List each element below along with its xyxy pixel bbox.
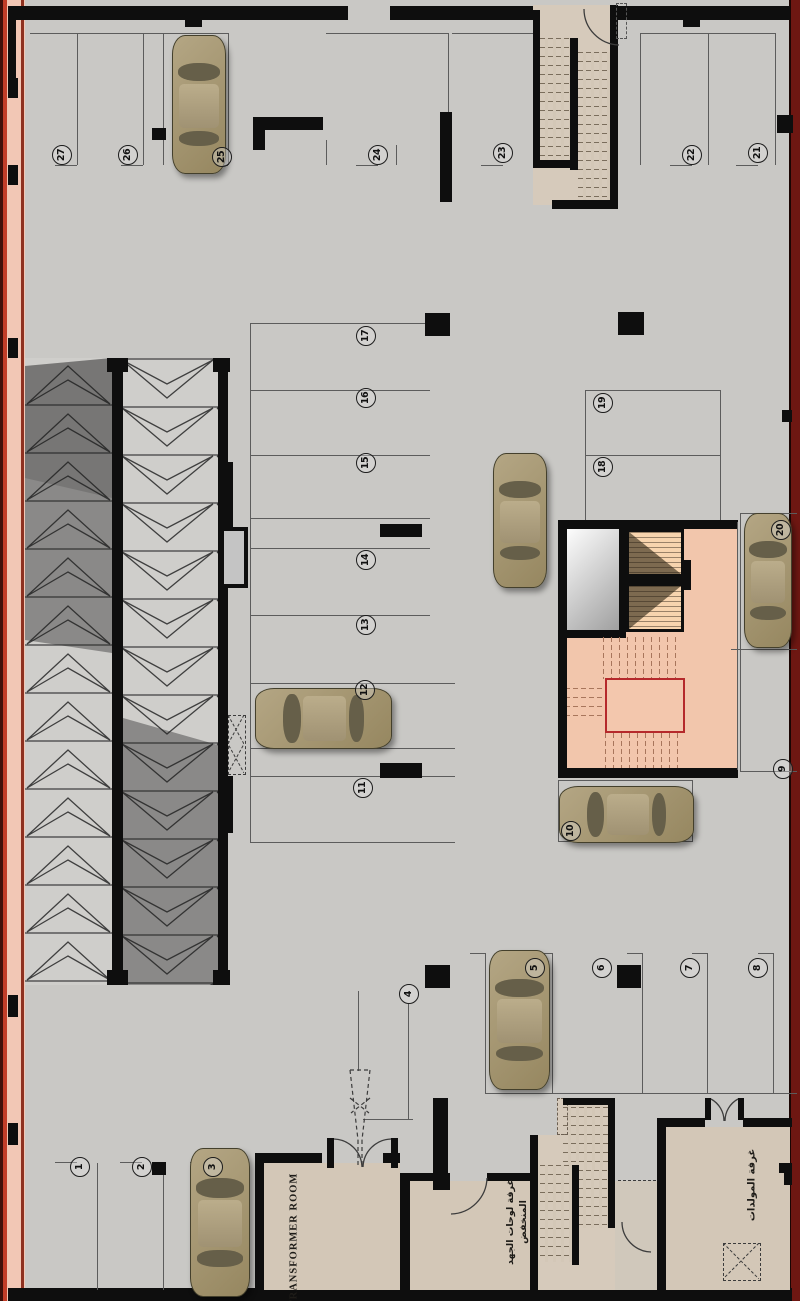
door-arcs bbox=[0, 0, 800, 1301]
parking-spot-number-20: 20 bbox=[771, 520, 791, 540]
parking-spot-number-26: 26 bbox=[118, 145, 138, 165]
parking-spot-number-14: 14 bbox=[356, 550, 376, 570]
parking-spot-number-11: 11 bbox=[353, 778, 373, 798]
parking-spot-number-15: 15 bbox=[356, 453, 376, 473]
car-glass bbox=[179, 131, 220, 146]
parking-spot-number-21: 21 bbox=[748, 143, 768, 163]
parking-spot-number-7: 7 bbox=[680, 958, 700, 978]
parking-spot-number-3: 3 bbox=[203, 1157, 223, 1177]
car-glass bbox=[652, 793, 667, 836]
parking-spot-number-24: 24 bbox=[368, 145, 388, 165]
car-glass bbox=[749, 541, 787, 558]
car-glass bbox=[178, 63, 221, 81]
car-roof bbox=[751, 561, 786, 604]
parking-spot-number-12: 12 bbox=[355, 680, 375, 700]
parking-spot-number-16: 16 bbox=[356, 388, 376, 408]
car-glass bbox=[283, 694, 301, 742]
car-roof bbox=[607, 794, 650, 836]
parking-spot-number-1: 1 bbox=[70, 1157, 90, 1177]
car-roof bbox=[497, 999, 542, 1043]
parking-spot-number-8: 8 bbox=[748, 958, 768, 978]
car-glass bbox=[500, 546, 541, 561]
car-glass bbox=[587, 792, 604, 837]
parking-spot-number-25: 25 bbox=[212, 147, 232, 167]
car-glass bbox=[750, 606, 786, 621]
parking-spot-number-10: 10 bbox=[561, 821, 581, 841]
parking-spot-number-13: 13 bbox=[356, 615, 376, 635]
parking-spot-number-6: 6 bbox=[592, 958, 612, 978]
parking-spot-number-9: 9 bbox=[773, 759, 793, 779]
parked-car bbox=[493, 453, 547, 588]
parking-spot-number-17: 17 bbox=[356, 326, 376, 346]
parking-spot-number-5: 5 bbox=[525, 958, 545, 978]
parking-spot-number-22: 22 bbox=[682, 145, 702, 165]
car-glass bbox=[197, 1250, 242, 1266]
parking-floor-plan: TRANSFORMER ROOM غرفة لوحات الجهد المنخف… bbox=[0, 0, 800, 1301]
parking-spot-number-18: 18 bbox=[593, 457, 613, 477]
car-glass bbox=[196, 1178, 244, 1197]
car-roof bbox=[303, 696, 346, 741]
car-roof bbox=[179, 84, 219, 128]
car-glass bbox=[349, 695, 364, 741]
car-roof bbox=[500, 501, 540, 544]
parking-spot-number-19: 19 bbox=[593, 393, 613, 413]
car-glass bbox=[499, 481, 542, 498]
parking-spot-number-27: 27 bbox=[52, 145, 72, 165]
parking-spot-number-23: 23 bbox=[493, 143, 513, 163]
car-glass bbox=[495, 979, 543, 997]
car-glass bbox=[496, 1046, 542, 1061]
car-roof bbox=[198, 1200, 242, 1247]
parking-spot-number-2: 2 bbox=[132, 1157, 152, 1177]
parking-spot-number-4: 4 bbox=[399, 984, 419, 1004]
